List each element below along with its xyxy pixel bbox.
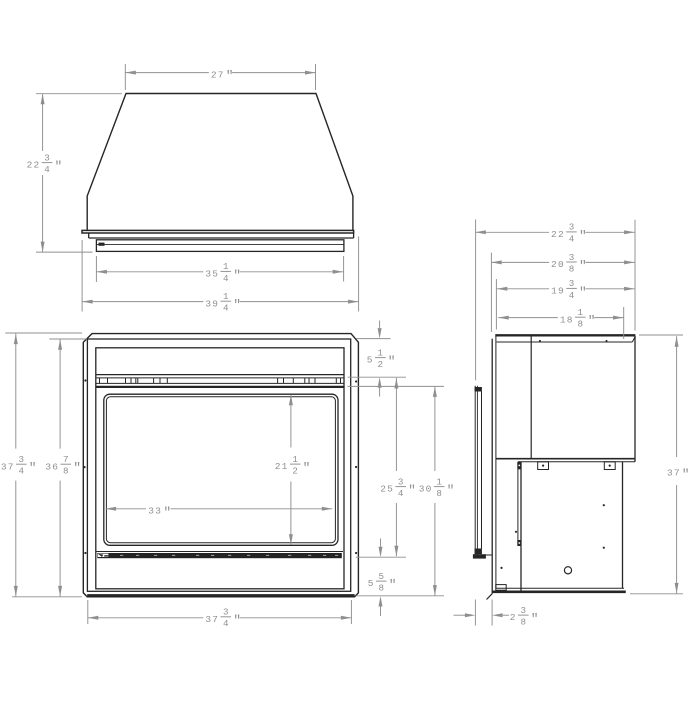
svg-text:25: 25 [380,484,394,495]
svg-text:": " [233,268,241,283]
svg-text:22: 22 [27,160,41,171]
svg-text:": " [408,483,416,498]
svg-text:": " [388,354,396,369]
svg-text:20: 20 [551,259,565,270]
svg-text:8: 8 [63,466,69,477]
svg-text:1: 1 [378,347,384,358]
svg-text:": " [233,298,241,313]
svg-text:3: 3 [18,454,24,465]
svg-text:8: 8 [577,319,583,330]
svg-text:1: 1 [577,307,583,318]
svg-text:4: 4 [569,290,575,301]
svg-text:1: 1 [292,454,298,465]
svg-text:21: 21 [275,461,289,472]
svg-text:7: 7 [63,454,69,465]
svg-text:": " [579,258,587,273]
svg-text:1: 1 [436,476,442,487]
svg-text:3: 3 [521,605,527,616]
svg-text:4: 4 [569,233,575,244]
svg-text:8: 8 [569,263,575,274]
svg-text:2: 2 [378,359,384,370]
svg-text:1: 1 [223,261,229,272]
svg-text:4: 4 [223,303,229,314]
svg-text:4: 4 [18,466,24,477]
svg-text:3: 3 [569,252,575,263]
svg-text:": " [303,461,311,476]
svg-text:8: 8 [436,488,442,499]
svg-text:": " [73,461,81,476]
svg-text:37: 37 [1,461,15,472]
svg-text:2: 2 [510,612,517,623]
svg-text:3: 3 [398,476,404,487]
svg-text:37: 37 [205,614,219,625]
svg-text:": " [29,461,37,476]
svg-text:5: 5 [367,355,374,366]
svg-text:": " [579,285,587,300]
svg-text:3: 3 [44,152,50,163]
svg-text:3: 3 [569,222,575,233]
svg-text:4: 4 [44,164,50,175]
svg-text:": " [531,612,539,627]
svg-text:8: 8 [379,583,385,594]
svg-text:": " [226,69,234,84]
svg-text:": " [588,314,596,329]
svg-text:39: 39 [205,298,219,309]
svg-text:5: 5 [379,571,385,582]
svg-text:3: 3 [223,607,229,618]
svg-text:8: 8 [521,617,527,628]
svg-text:4: 4 [223,618,229,629]
svg-text:35: 35 [205,269,219,280]
svg-text:22: 22 [551,229,565,240]
svg-text:": " [163,505,171,520]
svg-text:4: 4 [398,488,404,499]
svg-text:18: 18 [560,314,574,325]
svg-text:3: 3 [569,278,575,289]
svg-text:": " [447,483,455,498]
svg-text:27: 27 [211,69,225,80]
svg-text:19: 19 [551,286,565,297]
svg-text:": " [233,613,241,628]
svg-text:5: 5 [368,578,375,589]
svg-text:1: 1 [223,291,229,302]
svg-text:30: 30 [419,484,433,495]
svg-text:": " [389,578,397,593]
svg-text:": " [682,467,690,482]
svg-text:4: 4 [223,273,229,284]
svg-text:": " [55,159,63,174]
svg-text:37: 37 [667,468,681,479]
svg-text:36: 36 [45,461,59,472]
svg-text:2: 2 [292,466,298,477]
svg-text:33: 33 [148,506,162,517]
svg-text:": " [579,228,587,243]
